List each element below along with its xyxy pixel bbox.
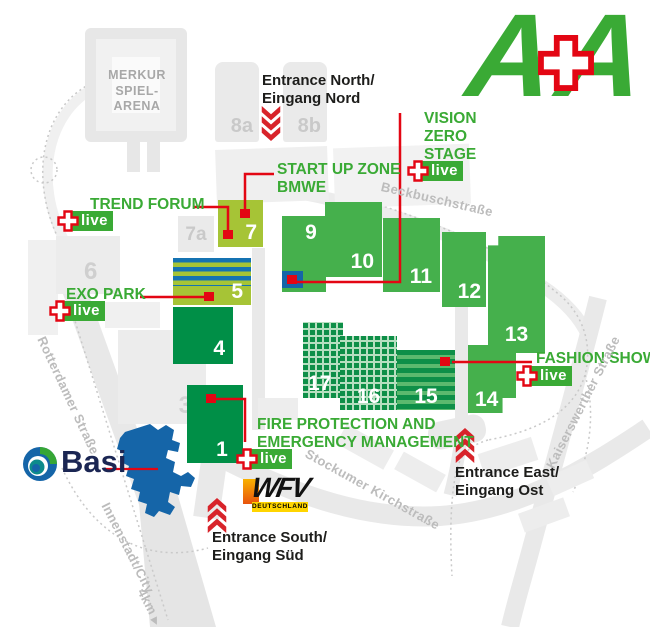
arena-label: MERKURSPIEL-ARENA (92, 68, 182, 115)
vision-zero-label: VISIONZEROSTAGE (424, 110, 477, 163)
basi-logo-text: Basi (61, 446, 126, 477)
location-markers (204, 209, 450, 403)
live-cross-icon (49, 300, 71, 322)
wfv-logo: WFV DEUTSCHLAND (243, 474, 321, 516)
fire-protection-label: FIRE PROTECTION ANDEMERGENCY MANAGEMENT (257, 416, 474, 452)
live-cross-icon (236, 448, 258, 470)
live-badge-vision-zero: live (407, 160, 463, 182)
live-cross-icon (57, 210, 79, 232)
entrance-south-label: Entrance South/Eingang Süd (212, 529, 327, 564)
wfv-logo-text: WFV (250, 474, 311, 502)
live-badge-trend-forum: live (57, 210, 113, 232)
wfv-country-banner: DEUTSCHLAND (252, 502, 308, 512)
live-cross-icon (407, 160, 429, 182)
live-badge-exo-park: live (49, 300, 105, 322)
entrance-north-label: Entrance North/Eingang Nord (262, 72, 375, 107)
brand-cross-icon (537, 34, 595, 92)
entrance-east-label: Entrance East/Eingang Ost (455, 464, 559, 499)
live-cross-icon (516, 365, 538, 387)
outdoor-area-blue (117, 424, 195, 517)
basi-logo-icon (22, 446, 58, 482)
live-badge-fire-protection: live (236, 448, 292, 470)
fairground-map: 8a 8b 7a 6 3 7 5 9 10 11 12 13 14 4 1 17… (0, 0, 650, 627)
live-badge-fashion-show: live (516, 365, 572, 387)
entrance-north-chevrons-icon (260, 106, 282, 142)
